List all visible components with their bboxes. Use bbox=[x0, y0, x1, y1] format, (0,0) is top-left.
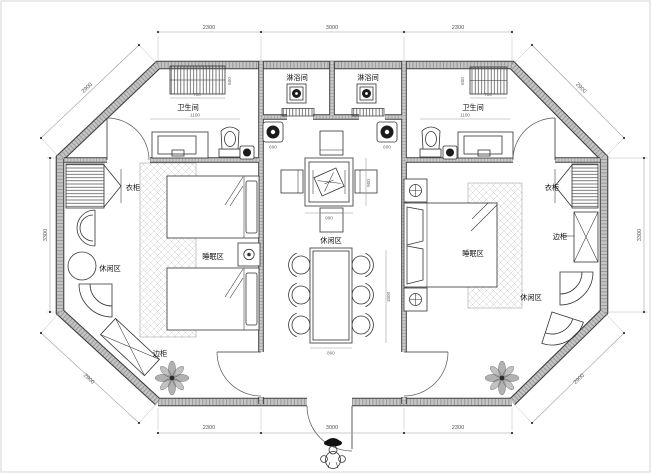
pedestal-sink bbox=[240, 146, 254, 159]
shower-step bbox=[352, 109, 384, 117]
dim-bottom-left: 2300 bbox=[203, 425, 215, 431]
wardrobe bbox=[66, 164, 104, 208]
label-shower-right: 淋浴间 bbox=[357, 73, 379, 82]
label-cabinet-left: 边柜 bbox=[153, 349, 167, 358]
dim-dining-w: 800 bbox=[327, 351, 335, 356]
fan-chair-1 bbox=[560, 272, 593, 305]
dining-chairs-right bbox=[352, 253, 373, 336]
dim-diag-br: 2900 bbox=[573, 373, 586, 386]
label-bathroom-left: 卫生间 bbox=[177, 103, 199, 112]
dim-basin-right: 600 bbox=[383, 145, 391, 150]
dim-shelf-right-d: 600 bbox=[460, 77, 465, 85]
label-leisure-left: 休闲区 bbox=[99, 264, 121, 273]
dim-shelf-left-d: 600 bbox=[227, 77, 232, 85]
dim-basin-left: 600 bbox=[269, 145, 277, 150]
round-table bbox=[68, 252, 96, 280]
washbasin-right bbox=[377, 122, 397, 142]
toilet bbox=[420, 127, 441, 157]
dim-diag-tl: 2900 bbox=[81, 82, 94, 95]
bath-door bbox=[107, 118, 149, 160]
bath-door bbox=[513, 118, 555, 160]
label-sleep-left: 睡眠区 bbox=[202, 252, 224, 261]
label-shower-left: 淋浴间 bbox=[286, 73, 308, 82]
dim-bottom-right: 2300 bbox=[452, 425, 464, 431]
floor-plan-svg: 2300 3000 2300 2300 3000 2300 3300 3300 … bbox=[0, 0, 651, 473]
dim-side-left: 3300 bbox=[43, 229, 49, 241]
dim-bath-left: 1100 bbox=[190, 113, 200, 118]
label-leisure-center: 休闲区 bbox=[320, 236, 342, 245]
bed-single-2 bbox=[167, 268, 259, 330]
dim-side-right: 3300 bbox=[637, 229, 643, 241]
wardrobe bbox=[572, 164, 598, 208]
floor-plan-page: 2300 3000 2300 2300 3000 2300 3300 3300 … bbox=[0, 0, 651, 473]
label-wardrobe-right: 衣柜 bbox=[545, 183, 559, 192]
nightstand bbox=[238, 243, 260, 266]
shower-step bbox=[282, 109, 314, 117]
shower-right bbox=[352, 84, 384, 116]
dim-top-middle: 3000 bbox=[326, 25, 338, 31]
label-bathroom-right: 卫生间 bbox=[462, 103, 484, 112]
bedroom-door bbox=[404, 352, 448, 396]
dim-diag-bl: 2900 bbox=[82, 373, 95, 386]
entry-statue bbox=[321, 438, 346, 469]
bed-single-1 bbox=[167, 176, 259, 238]
dim-top-left: 2300 bbox=[203, 25, 215, 31]
label-leisure-right: 休闲区 bbox=[520, 293, 542, 302]
fan-chair bbox=[79, 284, 112, 317]
bed-double bbox=[404, 203, 497, 287]
dim-square-w: 900 bbox=[325, 216, 333, 221]
dim-dining-l: 1800 bbox=[386, 291, 391, 302]
label-wardrobe-left: 衣柜 bbox=[126, 183, 140, 192]
bedroom-door bbox=[217, 352, 261, 396]
dim-bath-right: 1100 bbox=[460, 113, 470, 118]
washbasin-left bbox=[263, 122, 283, 142]
side-cabinet bbox=[562, 212, 598, 262]
right-bathroom bbox=[420, 67, 555, 160]
dining-table-set bbox=[289, 248, 374, 343]
central-hall bbox=[263, 122, 397, 469]
d-chair bbox=[77, 210, 95, 246]
dim-square-d: 900 bbox=[366, 179, 371, 187]
label-cabinet-right: 边柜 bbox=[553, 232, 567, 241]
pedestal-sink bbox=[443, 146, 457, 159]
toilet bbox=[219, 127, 240, 157]
nightstand-bottom bbox=[404, 288, 427, 311]
dim-shelf-left-w: 700 bbox=[193, 92, 201, 97]
dim-shelf-right-w: 700 bbox=[484, 92, 492, 97]
label-sleep-right: 睡眠区 bbox=[462, 249, 484, 258]
dining-chairs-left bbox=[289, 253, 310, 336]
shower-left bbox=[282, 84, 314, 116]
nightstand-top bbox=[404, 179, 427, 202]
dim-bottom-middle: 3000 bbox=[326, 425, 338, 431]
dim-top-right: 2300 bbox=[452, 25, 464, 31]
dim-diag-tr: 2900 bbox=[574, 82, 587, 95]
